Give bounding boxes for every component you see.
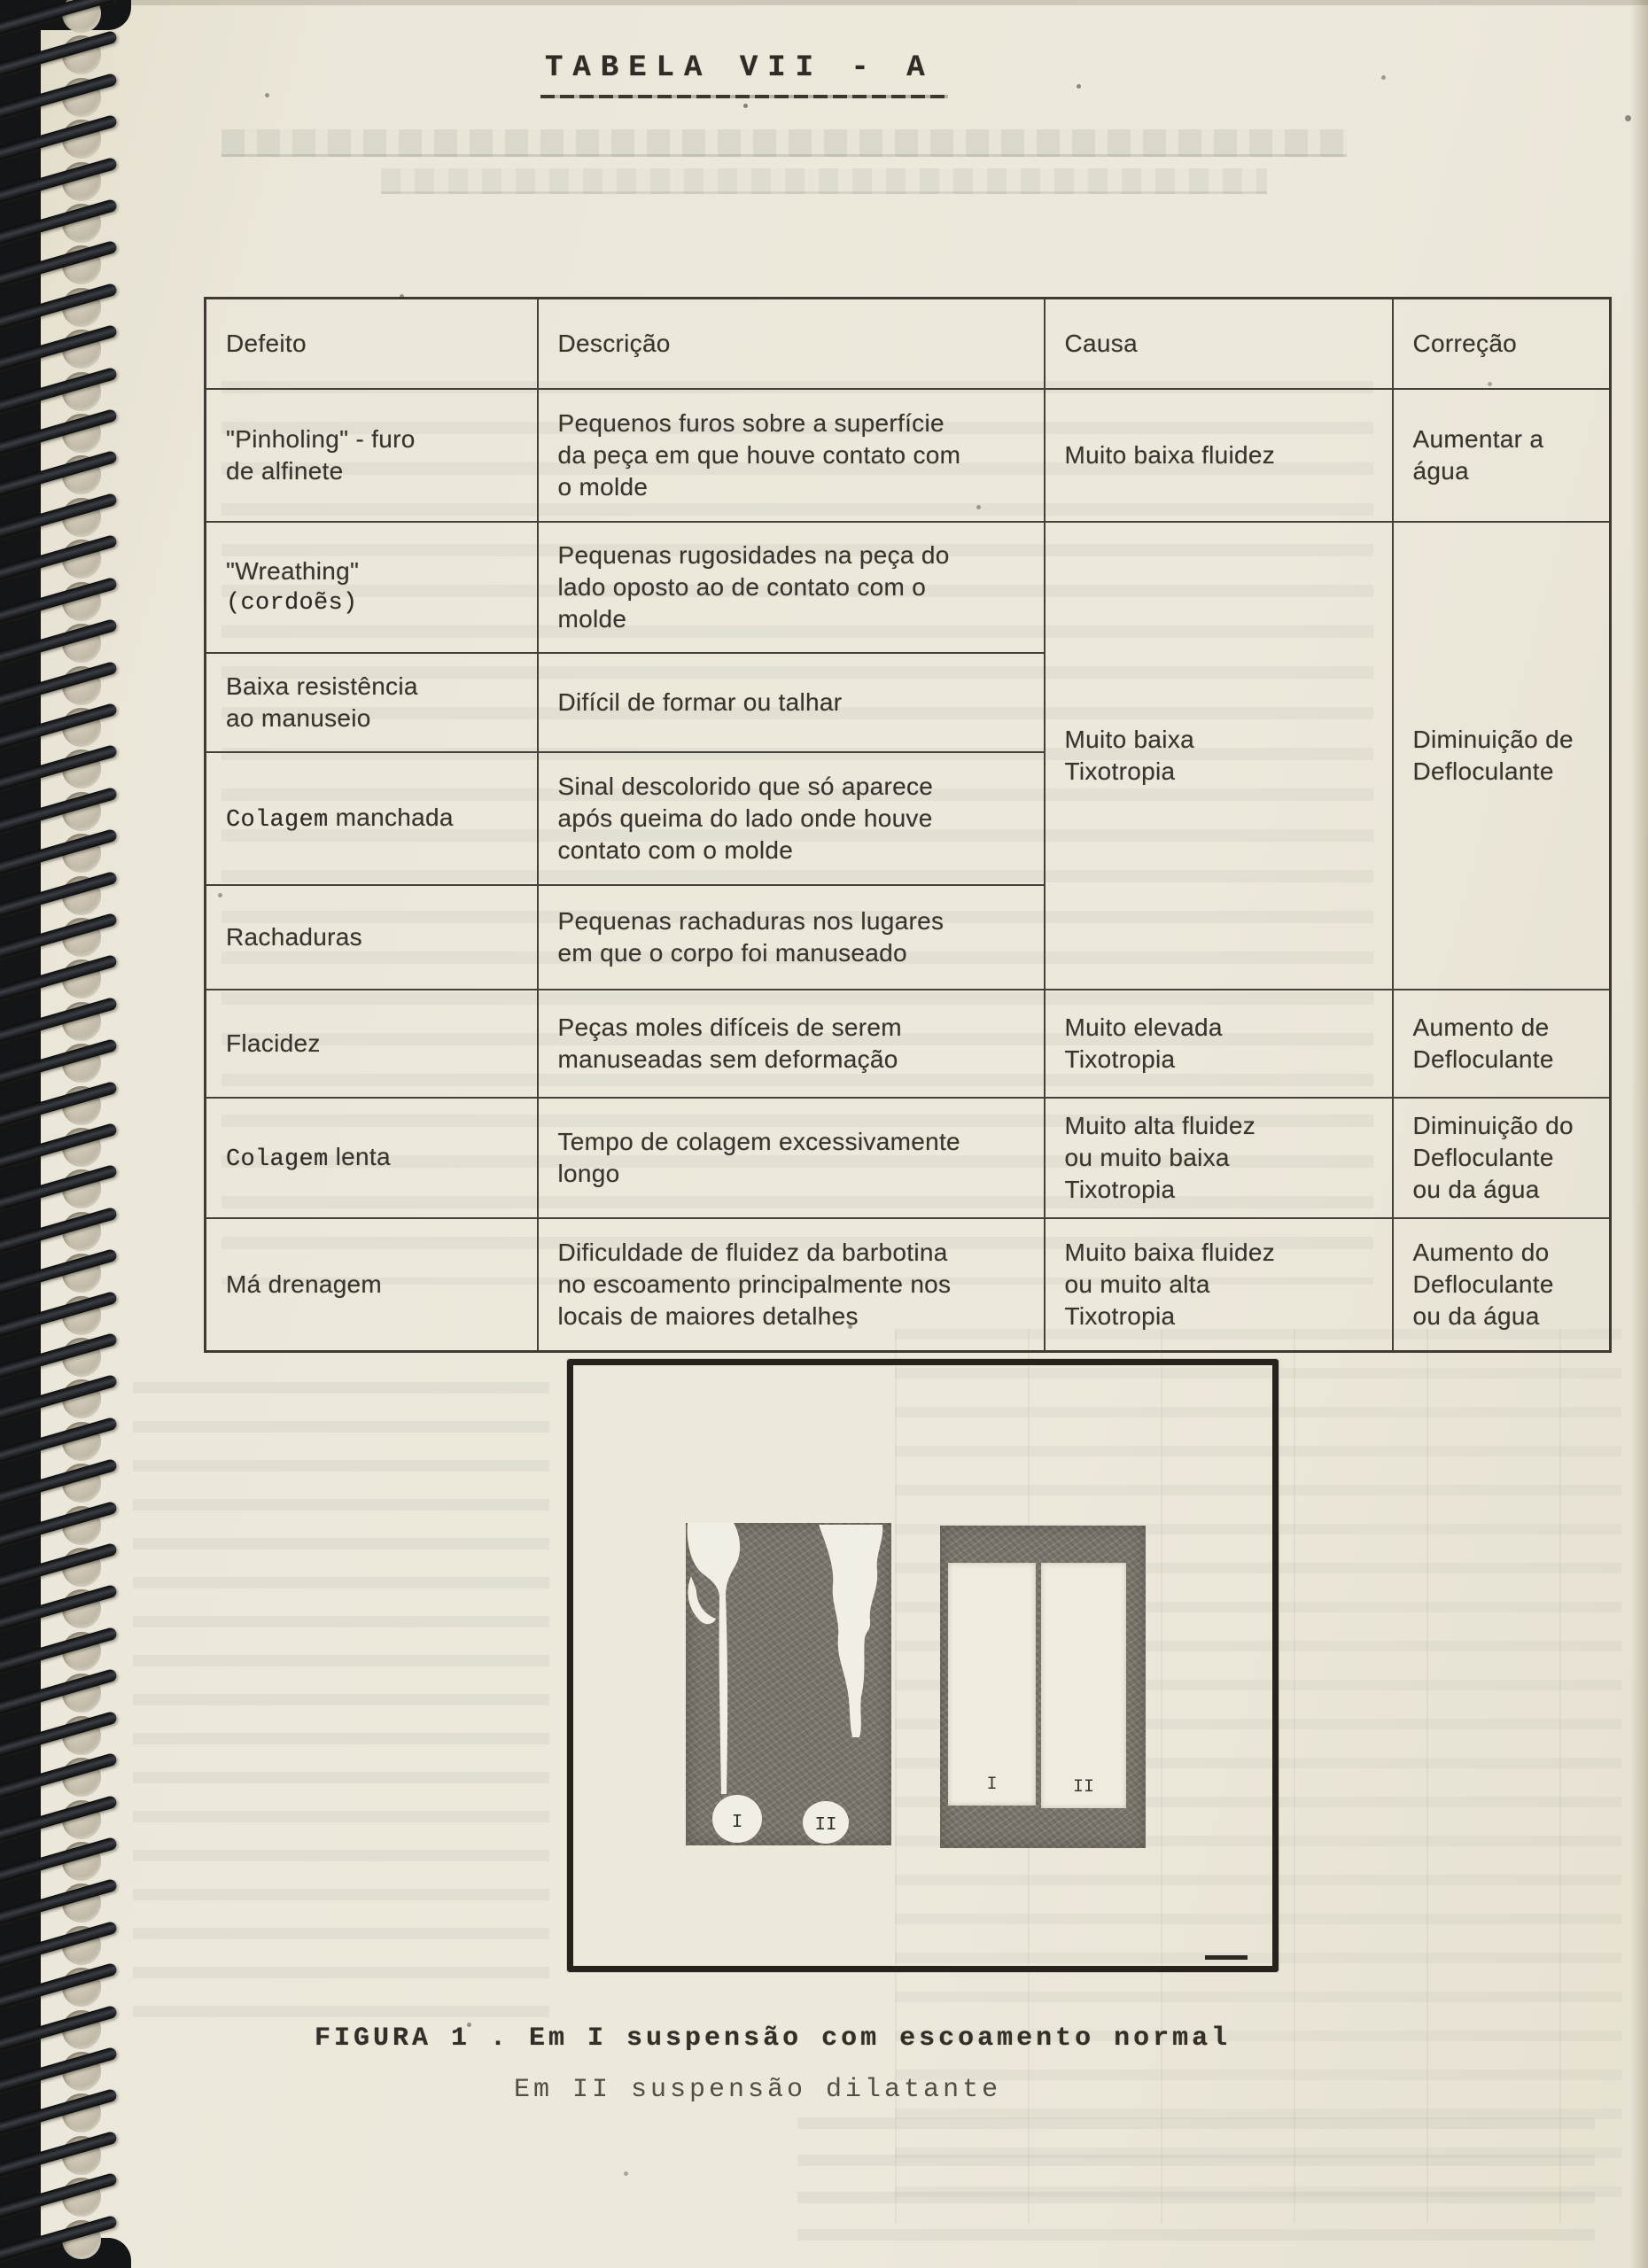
coil-wire <box>0 30 118 78</box>
coil <box>0 915 151 958</box>
defect-name: lenta <box>329 1143 391 1170</box>
stream-i-funnel <box>688 1523 740 1596</box>
binding-hole <box>62 1338 101 1377</box>
binding-hole <box>62 918 101 957</box>
page-edge-shadow-top <box>0 0 1648 5</box>
coil <box>0 2091 151 2133</box>
coil-wire <box>0 787 118 835</box>
coil <box>0 159 151 202</box>
coil-wire <box>0 1752 118 1800</box>
binding-hole <box>62 288 101 327</box>
coil <box>0 1377 151 1419</box>
defect-cause-merged: Muito baixa Tixotropia <box>1065 724 1380 788</box>
coil <box>0 411 151 454</box>
defect-name: Má drenagem <box>226 1269 525 1301</box>
coil <box>0 999 151 1042</box>
binding-hole <box>62 1212 101 1251</box>
binding-hole <box>62 1254 101 1293</box>
binding-hole <box>62 540 101 579</box>
coil <box>0 579 151 622</box>
page-edge-shadow-right <box>1630 0 1648 2268</box>
coil <box>0 33 151 75</box>
defect-name: Baixa resistência ao manuseio <box>226 671 525 734</box>
ghost-bleed-heading-line2 <box>381 168 1267 194</box>
coil-wire <box>0 198 118 246</box>
defect-correction: Aumento do Defloculante ou da água <box>1413 1237 1597 1332</box>
mold-slot-i-label: I <box>948 1775 1036 1795</box>
binding-hole <box>62 120 101 159</box>
table-row-pinholing: "Pinholing" - furo de alfinete Pequenos … <box>206 389 1611 522</box>
ghost-bleed-heading-line1 <box>222 129 1347 157</box>
coil-wire <box>0 1290 118 1338</box>
binding-hole <box>62 1926 101 1965</box>
coil <box>0 285 151 328</box>
table-row-flacidez: Flacidez Peças moles difíceis de serem m… <box>206 990 1611 1098</box>
binding-black-strip <box>0 0 41 2268</box>
stream-i-hook <box>688 1576 716 1624</box>
coil <box>0 957 151 999</box>
defect-description: Pequenos furos sobre a superfície da peç… <box>558 408 1031 503</box>
coil-wire <box>0 240 118 288</box>
coil-wire <box>0 1207 118 1254</box>
binding-hole <box>62 204 101 243</box>
binding-hole <box>62 2010 101 2049</box>
coil <box>0 1461 151 1503</box>
coil-wire <box>0 73 118 120</box>
table-row-colagem-lenta: Colagem lenta Tempo de colagem excessiva… <box>206 1098 1611 1218</box>
coil <box>0 874 151 916</box>
defect-description: Pequenas rachaduras nos lugares em que o… <box>558 905 1031 969</box>
coil-wire <box>0 1711 118 1759</box>
binding-hole <box>62 2136 101 2175</box>
coil-wire <box>0 703 118 750</box>
coil-wire <box>0 1038 118 1086</box>
coil-wire <box>0 2088 118 2136</box>
defect-name: manchada <box>329 804 454 831</box>
binding-hole <box>62 1674 101 1713</box>
coil <box>0 664 151 706</box>
coil <box>0 1798 151 1840</box>
coil-wire <box>0 114 118 162</box>
binding-hole <box>62 750 101 788</box>
binding-hole <box>62 1128 101 1167</box>
scanned-page: { "page_title": "TABELA VII - A", "table… <box>0 0 1648 2268</box>
binding-hole <box>62 1842 101 1881</box>
binding-hole <box>62 1800 101 1839</box>
figure-caption-line1: FIGURA 1 . Em I suspensão com escoamento… <box>315 2023 1231 2054</box>
defect-description: Dificuldade de fluidez da barbotina no e… <box>558 1237 1031 1332</box>
coil-wire <box>0 534 118 582</box>
defect-correction: Diminuição do Defloculante ou da água <box>1413 1110 1597 1206</box>
binding-hole <box>62 876 101 915</box>
defect-cause: Muito baixa fluidez <box>1065 439 1380 471</box>
coil <box>0 1125 151 1168</box>
coil-wire <box>0 1164 118 1212</box>
coil-wire <box>0 1584 118 1632</box>
binding-hole <box>62 1884 101 1922</box>
binding-hole <box>62 2093 101 2132</box>
binding-hole <box>62 2220 101 2259</box>
coil <box>0 1671 151 1713</box>
binding-hole <box>62 372 101 411</box>
binding-hole <box>62 1548 101 1587</box>
defect-name: Flacidez <box>226 1028 525 1060</box>
coil <box>0 117 151 159</box>
coil <box>0 789 151 832</box>
coil-wire <box>0 2131 118 2179</box>
stream-ii-label: II <box>814 1815 836 1836</box>
coil <box>0 1335 151 1378</box>
binding-hole <box>62 2178 101 2217</box>
header-correcao: Correção <box>1393 299 1611 390</box>
coil <box>0 201 151 244</box>
defect-correction: Aumentar a água <box>1413 423 1597 487</box>
coil <box>0 1041 151 1084</box>
coil <box>0 2175 151 2218</box>
coil <box>0 621 151 664</box>
defect-description: Tempo de colagem excessivamente longo <box>558 1126 1031 1190</box>
defect-name-typed: (cordoẽs) <box>226 587 525 619</box>
defect-description: Difícil de formar ou talhar <box>558 687 1031 718</box>
binding-hole <box>62 414 101 453</box>
coil <box>0 1713 151 1756</box>
coil-wire <box>0 408 118 456</box>
coil <box>0 1839 151 1882</box>
defect-cause: Muito alta fluidez ou muito baixa Tixotr… <box>1065 1110 1380 1206</box>
coil <box>0 2133 151 2176</box>
coil-wire <box>0 283 118 330</box>
coil-wire <box>0 618 118 666</box>
coil <box>0 537 151 579</box>
coil-wire <box>0 450 118 498</box>
table-row-wreathing: "Wreathing" (cordoẽs) Pequenas rugosidad… <box>206 522 1611 653</box>
binding-hole <box>62 1086 101 1125</box>
mold-slot-i: I <box>948 1563 1036 1806</box>
coil <box>0 2218 151 2260</box>
coil-wire <box>0 1837 118 1884</box>
coil <box>0 243 151 285</box>
coil <box>0 1251 151 1293</box>
binding-hole <box>62 582 101 621</box>
coil-wire <box>0 2047 118 2094</box>
defect-name: "Wreathing" <box>226 555 525 587</box>
coil-wire <box>0 1248 118 1296</box>
binding-hole <box>62 1044 101 1083</box>
coil <box>0 495 151 538</box>
coil-wire <box>0 1374 118 1422</box>
coil <box>0 369 151 412</box>
table-header-row: Defeito Descrição Causa Correção <box>206 299 1611 390</box>
coil-wire <box>0 1962 118 2010</box>
coil <box>0 453 151 495</box>
binding-hole <box>62 1632 101 1671</box>
defect-description: Pequenas rugosidades na peça do lado opo… <box>558 540 1031 635</box>
coil <box>0 1965 151 2008</box>
coil <box>0 1167 151 1209</box>
defect-description: Peças moles difíceis de serem manuseadas… <box>558 1012 1031 1076</box>
binding-hole <box>62 1296 101 1335</box>
ghost-bleed-left-column <box>133 1382 549 2020</box>
binding-hole <box>62 1506 101 1545</box>
figure-caption-line2: Em II suspensão dilatante <box>514 2075 1001 2105</box>
coil <box>0 1587 151 1629</box>
binding-hole <box>62 1422 101 1461</box>
coil <box>0 705 151 748</box>
header-defeito: Defeito <box>206 299 538 390</box>
header-causa: Causa <box>1045 299 1393 390</box>
coil-wire <box>0 367 118 415</box>
binding-hole <box>62 35 101 74</box>
coil-wire <box>0 1080 118 1128</box>
defects-table: Defeito Descrição Causa Correção "Pinhol… <box>204 297 1612 1353</box>
binding-hole <box>62 1002 101 1041</box>
binding-corner-bottom <box>0 2238 131 2268</box>
binding-hole <box>62 959 101 998</box>
coil <box>0 1545 151 1588</box>
ghost-bleed-bottom-lines <box>797 2117 1595 2259</box>
coil <box>0 1503 151 1546</box>
coil-wire <box>0 954 118 1002</box>
mold-slot-ii-label: II <box>1041 1777 1126 1798</box>
defect-name: "Pinholing" - furo de alfinete <box>226 423 525 487</box>
binding-hole <box>62 1968 101 2007</box>
coil <box>0 1755 151 1798</box>
coil-wire <box>0 870 118 918</box>
coil-wire <box>0 0 118 36</box>
flow-streams-drawing: I II <box>686 1523 891 1845</box>
header-descricao: Descrição <box>538 299 1045 390</box>
stream-ii-flow <box>819 1525 882 1737</box>
binding-hole <box>62 1589 101 1628</box>
mold-slot-ii: II <box>1041 1563 1126 1808</box>
coil-wire <box>0 660 118 708</box>
coil-wire <box>0 997 118 1045</box>
coil <box>0 75 151 118</box>
defect-name-typed: Colagem <box>226 1146 329 1173</box>
defect-correction: Aumento de Defloculante <box>1413 1012 1597 1076</box>
coil <box>0 1923 151 1966</box>
coil-wire <box>0 1668 118 1716</box>
coil <box>0 1419 151 1462</box>
binding-hole <box>62 792 101 831</box>
binding-hole <box>62 1716 101 1755</box>
coil-wire <box>0 2004 118 2052</box>
coil-wire <box>0 1458 118 1506</box>
binding-hole <box>62 708 101 747</box>
binding-hole <box>62 834 101 873</box>
binding-hole <box>62 1464 101 1503</box>
coil <box>0 1084 151 1126</box>
coil <box>0 747 151 789</box>
table-row-ma-drenagem: Má drenagem Dificuldade de fluidez da ba… <box>206 1218 1611 1351</box>
defect-name-typed: Colagem <box>226 807 329 834</box>
coil-wire <box>0 2214 118 2262</box>
coil <box>0 831 151 874</box>
coil <box>0 1629 151 1672</box>
coil-wire <box>0 1417 118 1464</box>
defect-correction-merged: Diminuição de Defloculante <box>1413 724 1597 788</box>
binding-hole <box>62 245 101 284</box>
coil-wire <box>0 156 118 204</box>
coil-wire <box>0 1122 118 1170</box>
page-title-underline <box>540 95 948 98</box>
scan-dust-specks <box>0 0 3 3</box>
stream-i-label: I <box>732 1813 743 1833</box>
binding-hole <box>62 1379 101 1418</box>
figure-panel-mold-slots: I II <box>940 1526 1146 1848</box>
binding-hole <box>62 666 101 705</box>
coil <box>0 1881 151 1923</box>
coil-wire <box>0 1542 118 1590</box>
coil-wire <box>0 577 118 625</box>
page-title: TABELA VII - A <box>545 51 961 85</box>
coil-wire <box>0 1501 118 1549</box>
binding-hole <box>62 1169 101 1208</box>
coil-wire <box>0 1332 118 1380</box>
figure-frame: I II I II <box>567 1359 1279 1972</box>
coil-wire <box>0 828 118 876</box>
coil <box>0 2049 151 2092</box>
coil-wire <box>0 2172 118 2220</box>
binding-hole <box>62 498 101 537</box>
binding-hole <box>62 78 101 117</box>
coil-wire <box>0 324 118 372</box>
binding-hole <box>62 1758 101 1797</box>
coil <box>0 2008 151 2050</box>
binding-hole <box>62 162 101 201</box>
coil <box>0 327 151 369</box>
coil-wire <box>0 913 118 960</box>
coil <box>0 1209 151 1252</box>
defect-cause: Muito baixa fluidez ou muito alta Tixotr… <box>1065 1237 1380 1332</box>
coil-wire <box>0 744 118 792</box>
defect-name: Rachaduras <box>226 921 525 953</box>
coil-wire <box>0 1878 118 1926</box>
figure-panel-flow-test: I II <box>686 1523 891 1845</box>
coil-wire <box>0 493 118 540</box>
coil-wire <box>0 1921 118 1969</box>
defect-cause: Muito elevada Tixotropia <box>1065 1012 1380 1076</box>
coil <box>0 1293 151 1336</box>
binding-hole <box>62 2052 101 2091</box>
spiral-binding <box>0 0 177 2268</box>
stream-i-flow <box>719 1594 727 1794</box>
binding-hole <box>62 330 101 369</box>
binding-hole <box>62 455 101 494</box>
frame-ink-dash <box>1205 1955 1248 1960</box>
coil-wire <box>0 1794 118 1842</box>
coil-wire <box>0 1627 118 1674</box>
binding-hole <box>62 624 101 663</box>
defect-description: Sinal descolorido que só aparece após qu… <box>558 771 1031 866</box>
